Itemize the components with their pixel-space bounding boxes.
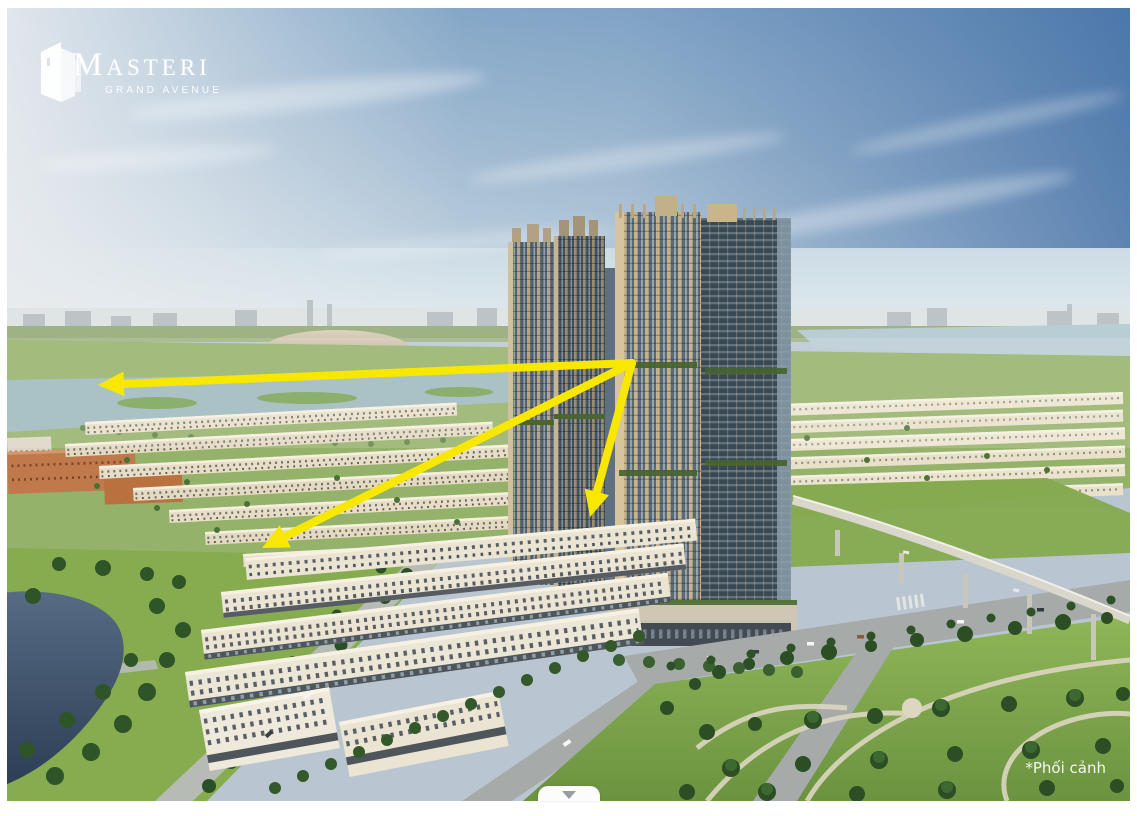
tower-4	[701, 204, 791, 653]
watermark: *Phối cảnh	[1025, 759, 1106, 777]
logo: MASTERI GRAND AVENUE	[35, 38, 222, 106]
page: MASTERI GRAND AVENUE *Phối cảnh	[0, 0, 1137, 816]
chevron-down-icon	[562, 791, 576, 799]
scroll-down-tab[interactable]	[538, 786, 600, 801]
park-plaza	[902, 698, 922, 718]
brand-name: MASTERI	[73, 49, 222, 82]
brand-tagline: GRAND AVENUE	[105, 85, 222, 96]
project-render	[7, 8, 1130, 801]
render-image: MASTERI GRAND AVENUE *Phối cảnh	[7, 8, 1130, 801]
bottom-bar	[0, 801, 1137, 816]
brand-initial: M	[73, 47, 106, 83]
